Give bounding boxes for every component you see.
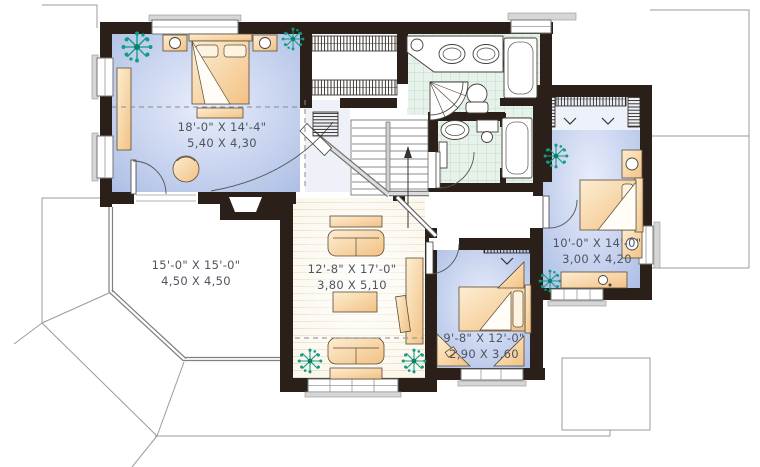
bathtub-upper — [504, 38, 537, 98]
console-table — [330, 368, 382, 379]
armchair — [173, 156, 199, 182]
floor-plan-svg: 18'-0" X 14'-4" 5,40 X 4,30 15'-0" X 15'… — [0, 0, 760, 467]
sofa-top — [328, 230, 384, 256]
small-sink — [411, 39, 423, 51]
bath-top-window — [508, 13, 576, 33]
master-bedroom-dims-imperial: 18'-0" X 14'-4" — [178, 120, 267, 134]
bedroom-3-dims-metric: 2,90 X 3,60 — [449, 347, 519, 361]
master-left-window-1 — [92, 55, 113, 99]
family-room-dims-imperial: 12'-8" X 17'-0" — [308, 262, 397, 276]
linen-closet — [313, 112, 338, 136]
bedroom-3-dims-imperial: 9'-8" X 12'-0" — [443, 331, 524, 345]
bedroom-3-bottom-window — [458, 369, 526, 386]
master-left-window-2 — [92, 133, 113, 181]
bedroom-2-desk — [561, 272, 627, 288]
stair-center-rail — [386, 122, 390, 193]
toilet — [466, 84, 488, 113]
sofa-table — [330, 216, 382, 227]
master-bedroom-dims-metric: 5,40 X 4,30 — [187, 136, 257, 150]
lamp — [260, 38, 271, 49]
water-closet-toilet — [441, 121, 469, 140]
coffee-table — [333, 292, 377, 312]
floor-plan-canvas: 18'-0" X 14'-4" 5,40 X 4,30 15'-0" X 15'… — [0, 0, 760, 467]
master-top-window — [149, 15, 241, 34]
family-room-bottom-window — [305, 379, 401, 397]
bedroom-2-bed — [580, 178, 643, 232]
walk-in-closet-racks — [312, 36, 397, 95]
lamp — [170, 38, 181, 49]
open-area-dims-imperial: 15'-0" X 15'-0" — [152, 258, 241, 272]
sofa-bottom — [328, 338, 384, 364]
bedroom-2-dims-imperial: 10'-0" X 14'-0" — [553, 236, 642, 250]
lamp — [626, 158, 638, 170]
bedroom-2-dims-metric: 3,00 X 4,20 — [562, 252, 632, 266]
master-bed — [189, 34, 252, 104]
dresser — [117, 68, 131, 150]
bedroom-3-bed — [459, 285, 531, 333]
open-area-dims-metric: 4,50 X 4,50 — [161, 274, 231, 288]
foot-bench — [197, 108, 243, 118]
family-room-dims-metric: 3,80 X 5,10 — [317, 278, 387, 292]
bedroom-2-bottom-window — [548, 289, 606, 306]
bathtub-lower — [502, 118, 532, 178]
